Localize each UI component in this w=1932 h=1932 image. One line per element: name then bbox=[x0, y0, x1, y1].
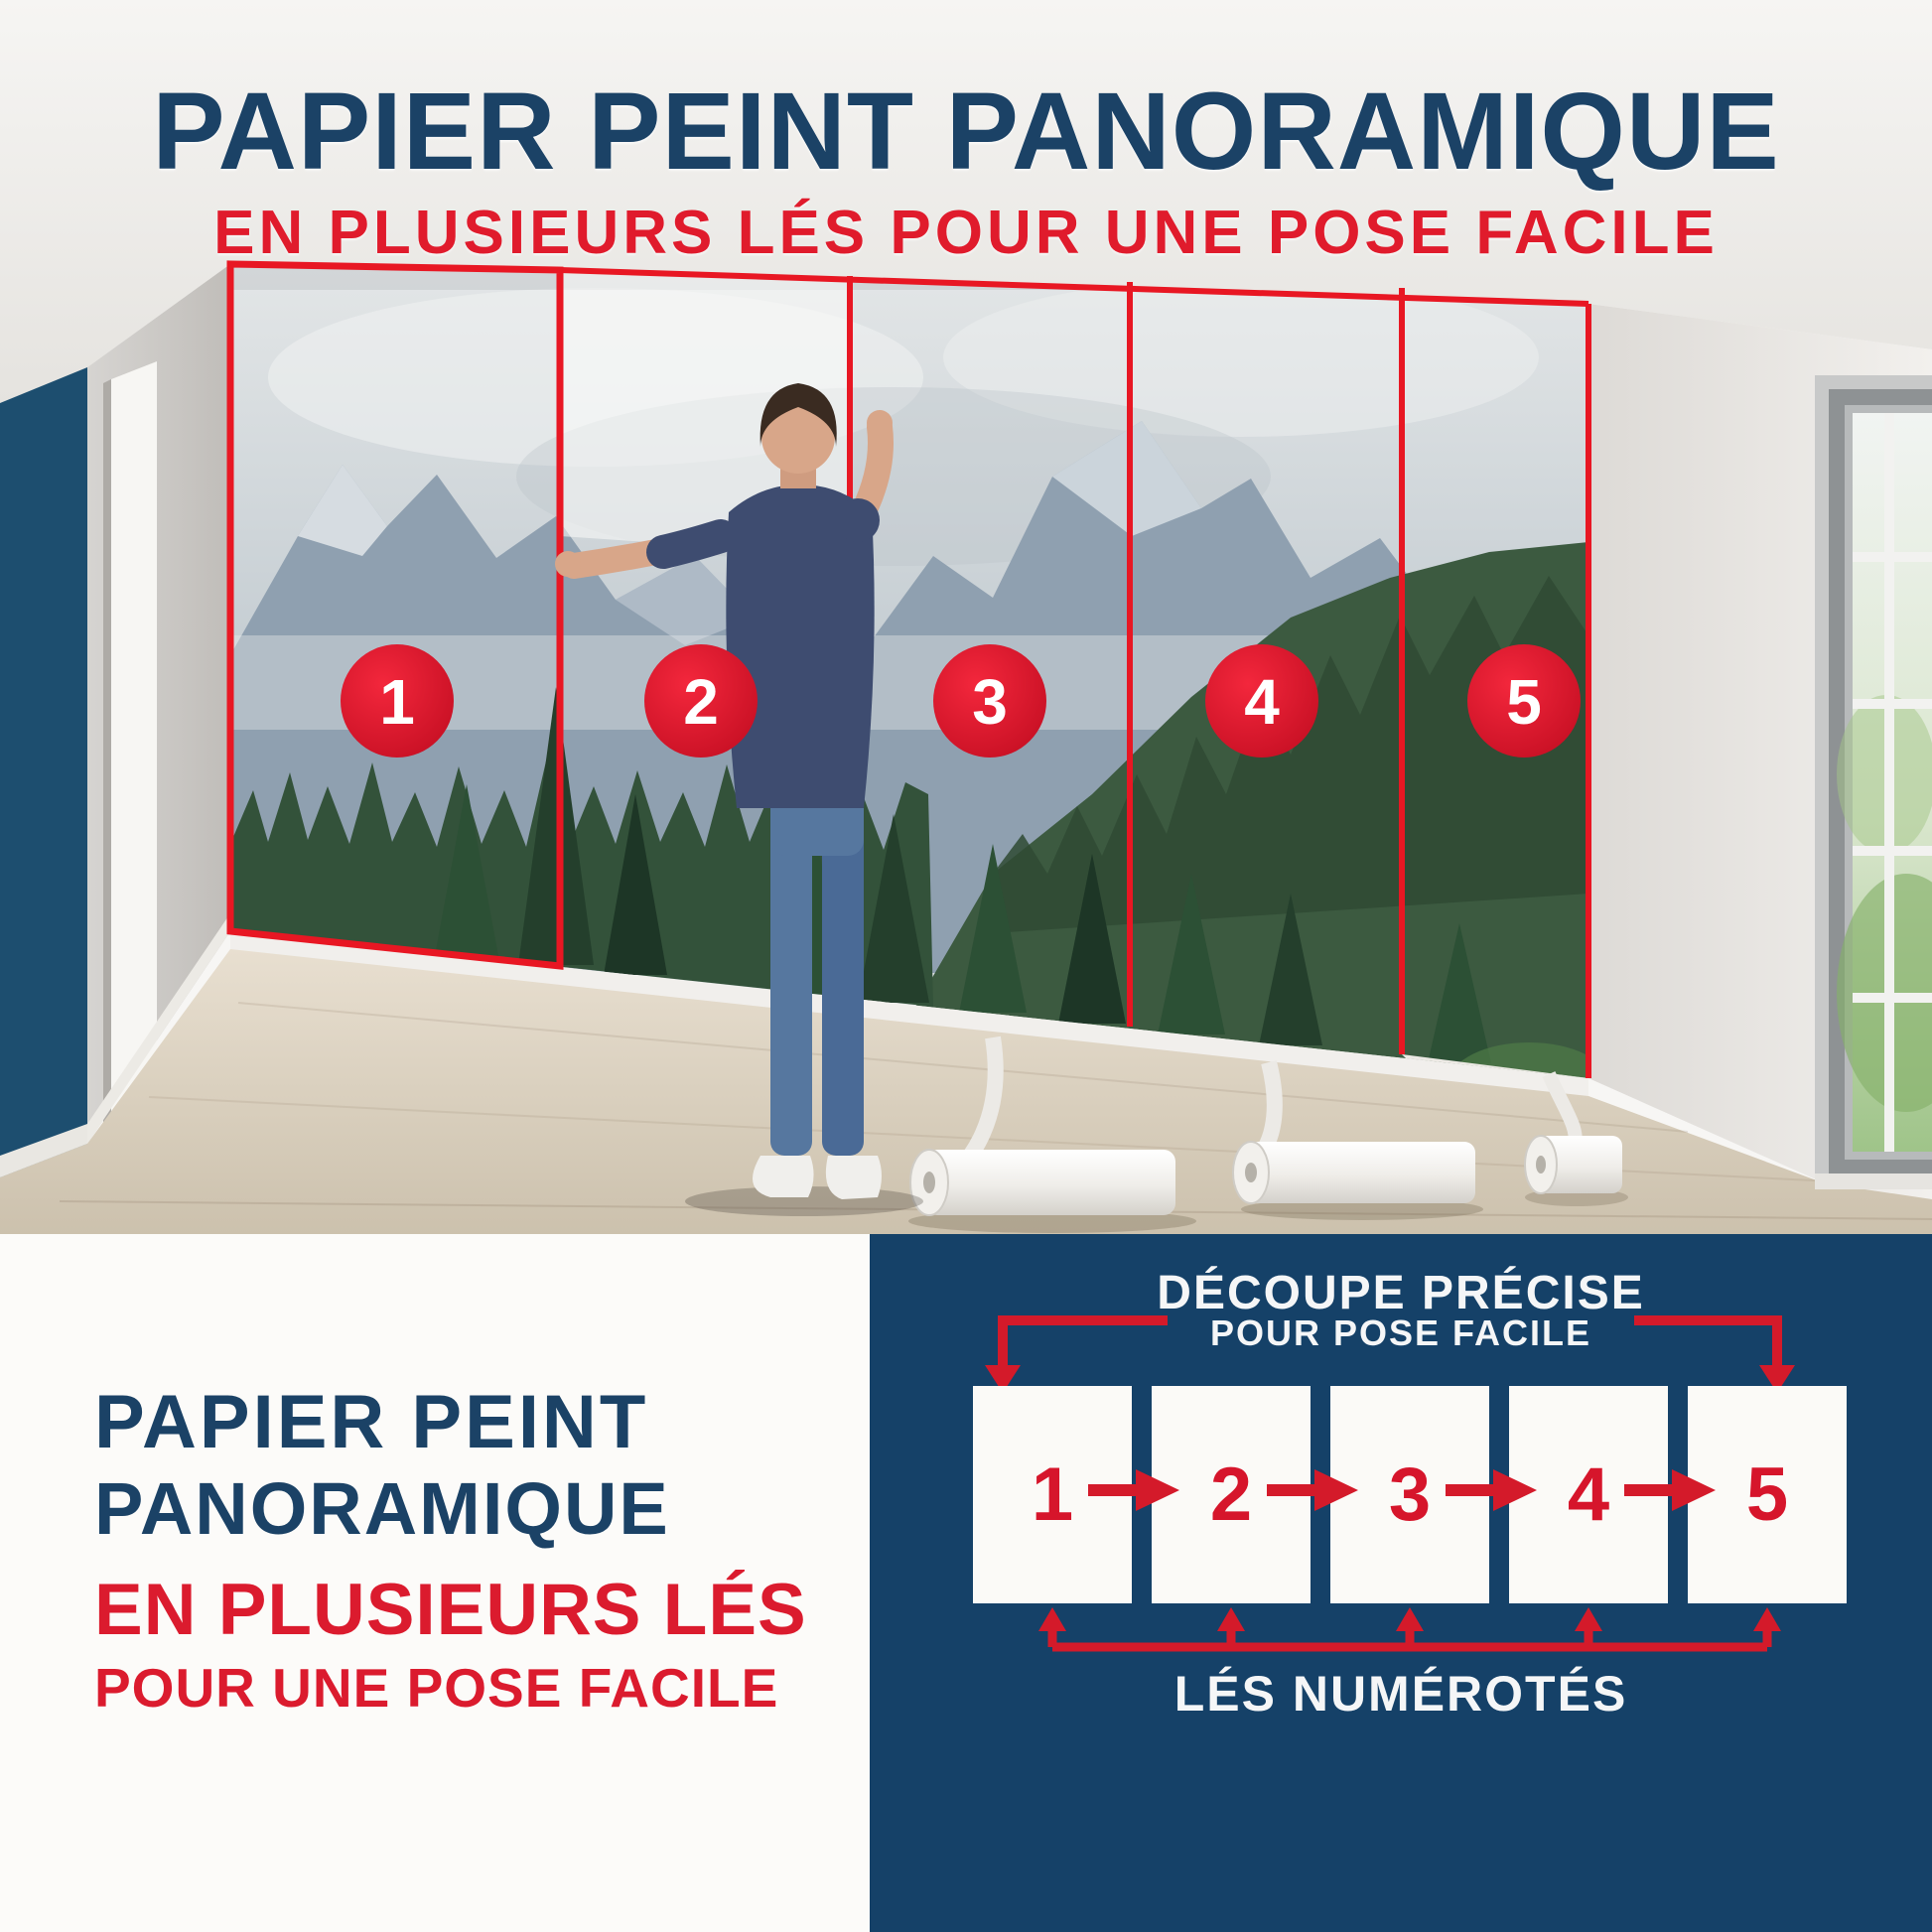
strip-badge-number: 2 bbox=[683, 666, 719, 738]
strip-badge-number: 1 bbox=[379, 666, 415, 738]
wallpaper-roll bbox=[1233, 1142, 1475, 1203]
accent-wall bbox=[0, 367, 87, 1177]
wallpaper-roll bbox=[1525, 1136, 1622, 1193]
left-subtitle-line1: EN PLUSIEURS LÉS bbox=[94, 1574, 807, 1646]
page-title: PAPIER PEINT PANORAMIQUE bbox=[0, 0, 1932, 187]
diagram-number: 2 bbox=[1210, 1452, 1252, 1537]
diagram-number: 4 bbox=[1568, 1452, 1609, 1537]
strip-badge-1: 1 bbox=[341, 644, 454, 758]
wallpaper-roll bbox=[910, 1150, 1175, 1215]
strip-badge-2: 2 bbox=[644, 644, 758, 758]
diagram-title-line2: POUR POSE FACILE bbox=[1210, 1312, 1591, 1353]
diagram-panel: DÉCOUPE PRÉCISE POUR POSE FACILE bbox=[870, 1234, 1932, 1932]
room-photo-section: 1 2 3 4 5 bbox=[0, 0, 1932, 1234]
strip-badge-number: 5 bbox=[1506, 666, 1542, 738]
diagram-number: 3 bbox=[1389, 1452, 1431, 1537]
page-subtitle: EN PLUSIEURS LÉS POUR UNE POSE FACILE bbox=[0, 187, 1932, 264]
numbered-strips-diagram: DÉCOUPE PRÉCISE POUR POSE FACILE bbox=[870, 1234, 1932, 1932]
left-title-line2: PANORAMIQUE bbox=[94, 1472, 670, 1546]
strip-badge-4: 4 bbox=[1205, 644, 1318, 758]
left-title-line1: PAPIER PEINT bbox=[94, 1385, 648, 1460]
diagram-number: 1 bbox=[1032, 1452, 1073, 1537]
diagram-caption: LÉS NUMÉROTÉS bbox=[1174, 1666, 1628, 1722]
diagram-title-line1: DÉCOUPE PRÉCISE bbox=[1157, 1266, 1644, 1319]
strip-badge-number: 4 bbox=[1244, 666, 1280, 738]
diagram-number: 5 bbox=[1746, 1452, 1788, 1537]
wallpaper-infographic: 1 2 3 4 5 bbox=[0, 0, 1932, 1932]
strip-badge-5: 5 bbox=[1467, 644, 1581, 758]
left-subtitle-line2: POUR UNE POSE FACILE bbox=[94, 1661, 778, 1716]
header: PAPIER PEINT PANORAMIQUE EN PLUSIEURS LÉ… bbox=[0, 0, 1932, 264]
strip-badge-3: 3 bbox=[933, 644, 1046, 758]
strip-badge-number: 3 bbox=[972, 666, 1008, 738]
window bbox=[1815, 375, 1932, 1189]
text-panel: PAPIER PEINT PANORAMIQUE EN PLUSIEURS LÉ… bbox=[0, 1234, 870, 1932]
